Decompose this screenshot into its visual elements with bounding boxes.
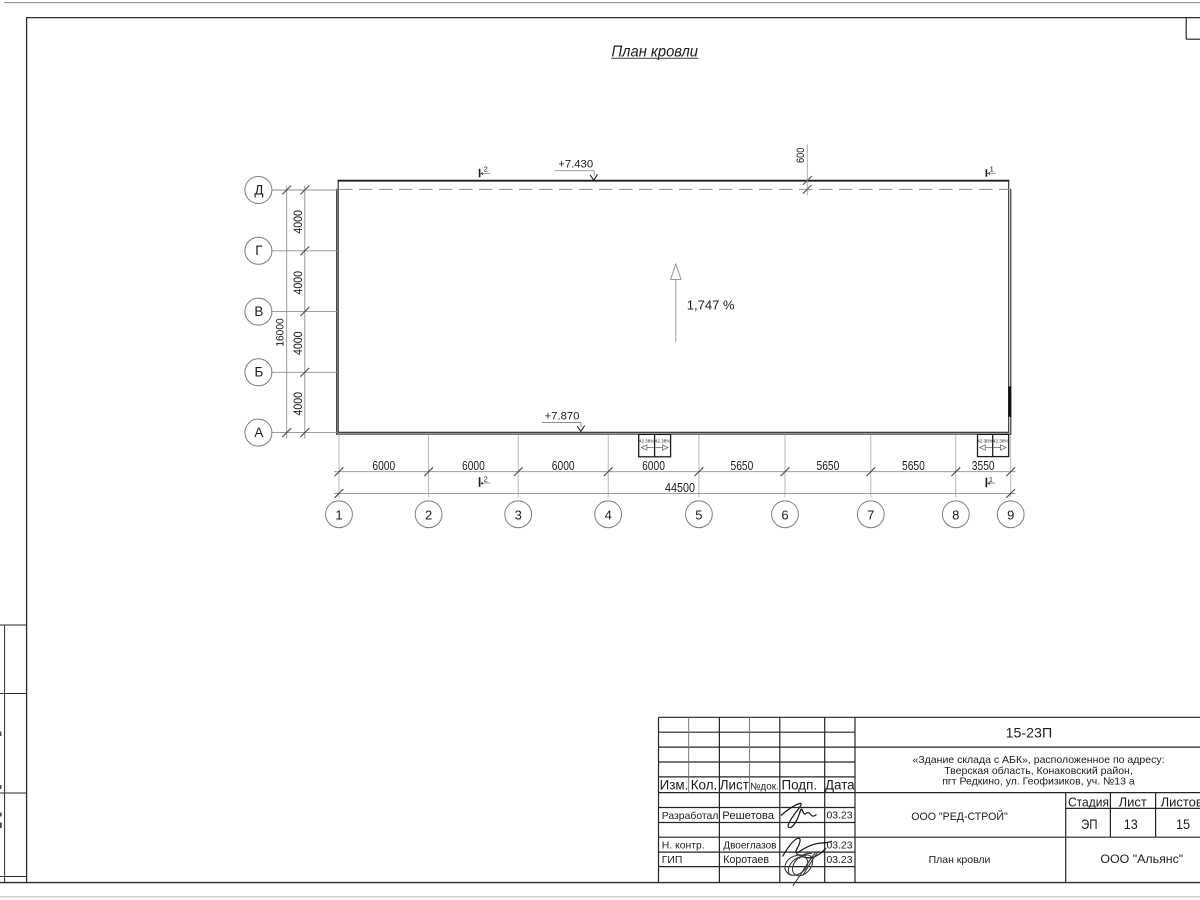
svg-text:Решетова: Решетова <box>722 810 774 822</box>
svg-text:6000: 6000 <box>462 458 485 473</box>
svg-text:42.38%: 42.38% <box>639 439 655 444</box>
svg-text:4000: 4000 <box>291 210 305 234</box>
svg-text:3: 3 <box>515 508 522 523</box>
svg-text:4000: 4000 <box>291 392 305 416</box>
svg-text:ООО "РЕД-СТРОЙ": ООО "РЕД-СТРОЙ" <box>911 810 1008 823</box>
svg-text:ООО "Альянс": ООО "Альянс" <box>1100 852 1183 866</box>
svg-text:1: 1 <box>990 165 994 174</box>
svg-text:Г: Г <box>255 243 262 258</box>
svg-text:2: 2 <box>484 475 488 484</box>
svg-text:4000: 4000 <box>291 331 305 355</box>
svg-text:ЭП: ЭП <box>1081 816 1098 832</box>
svg-text:6000: 6000 <box>642 458 665 473</box>
svg-text:Лист: Лист <box>1119 794 1147 809</box>
svg-text:Изм.: Изм. <box>660 777 689 792</box>
svg-text:1: 1 <box>335 508 342 523</box>
svg-text:4000: 4000 <box>291 271 305 295</box>
svg-text:Листов: Листов <box>1161 794 1200 809</box>
svg-text:Двоеглазов: Двоеглазов <box>723 841 776 852</box>
svg-text:03.23: 03.23 <box>826 811 852 822</box>
svg-text:44500: 44500 <box>665 480 695 495</box>
svg-text:3550: 3550 <box>972 458 995 473</box>
svg-text:Н. контр.: Н. контр. <box>662 841 705 852</box>
svg-text:5650: 5650 <box>902 458 925 473</box>
svg-text:6000: 6000 <box>552 458 575 473</box>
svg-text:Кол.: Кол. <box>691 777 718 792</box>
svg-text:Б: Б <box>255 365 264 380</box>
svg-text:+7.430: +7.430 <box>558 158 593 170</box>
svg-text:8: 8 <box>952 508 959 523</box>
svg-text:В: В <box>254 304 263 319</box>
svg-text:600: 600 <box>795 148 807 163</box>
svg-text:42.38%: 42.38% <box>655 439 671 444</box>
svg-text:+7.870: +7.870 <box>545 411 580 423</box>
svg-text:Дата: Дата <box>825 777 855 792</box>
svg-text:План кровли: План кровли <box>929 854 991 866</box>
svg-text:15-23П: 15-23П <box>1006 725 1052 741</box>
svg-text:Лист: Лист <box>720 777 749 792</box>
svg-text:Подп.: Подп. <box>782 777 818 792</box>
svg-text:13: 13 <box>1124 816 1138 832</box>
svg-text:Разработал: Разработал <box>662 810 719 822</box>
svg-text:15: 15 <box>1176 816 1190 832</box>
svg-text:03.23: 03.23 <box>826 855 852 866</box>
svg-text:5: 5 <box>695 508 702 523</box>
svg-text:Стадия: Стадия <box>1068 794 1109 809</box>
svg-text:2: 2 <box>425 508 432 523</box>
svg-text:ГИП: ГИП <box>662 855 683 866</box>
svg-text:2: 2 <box>484 165 488 174</box>
svg-text:16000: 16000 <box>275 318 287 346</box>
svg-text:5650: 5650 <box>731 458 754 473</box>
svg-text:А: А <box>254 425 263 440</box>
svg-text:6000: 6000 <box>372 458 395 473</box>
svg-text:№док.: №док. <box>750 782 779 793</box>
svg-text:5650: 5650 <box>817 458 840 473</box>
svg-text:42.38%: 42.38% <box>993 439 1009 444</box>
svg-text:42.38%: 42.38% <box>977 439 993 444</box>
svg-text:Д: Д <box>254 182 263 197</box>
svg-text:6: 6 <box>781 508 788 523</box>
svg-text:пгт Редкино, ул. Геофизиков, у: пгт Редкино, ул. Геофизиков, уч. №13 а <box>942 775 1135 787</box>
svg-text:1,747 %: 1,747 % <box>687 297 735 312</box>
svg-text:7: 7 <box>867 508 874 523</box>
svg-text:9: 9 <box>1007 508 1014 523</box>
svg-text:4: 4 <box>605 508 612 523</box>
svg-text:Коротаев: Коротаев <box>723 854 769 866</box>
svg-text:1: 1 <box>989 475 993 484</box>
